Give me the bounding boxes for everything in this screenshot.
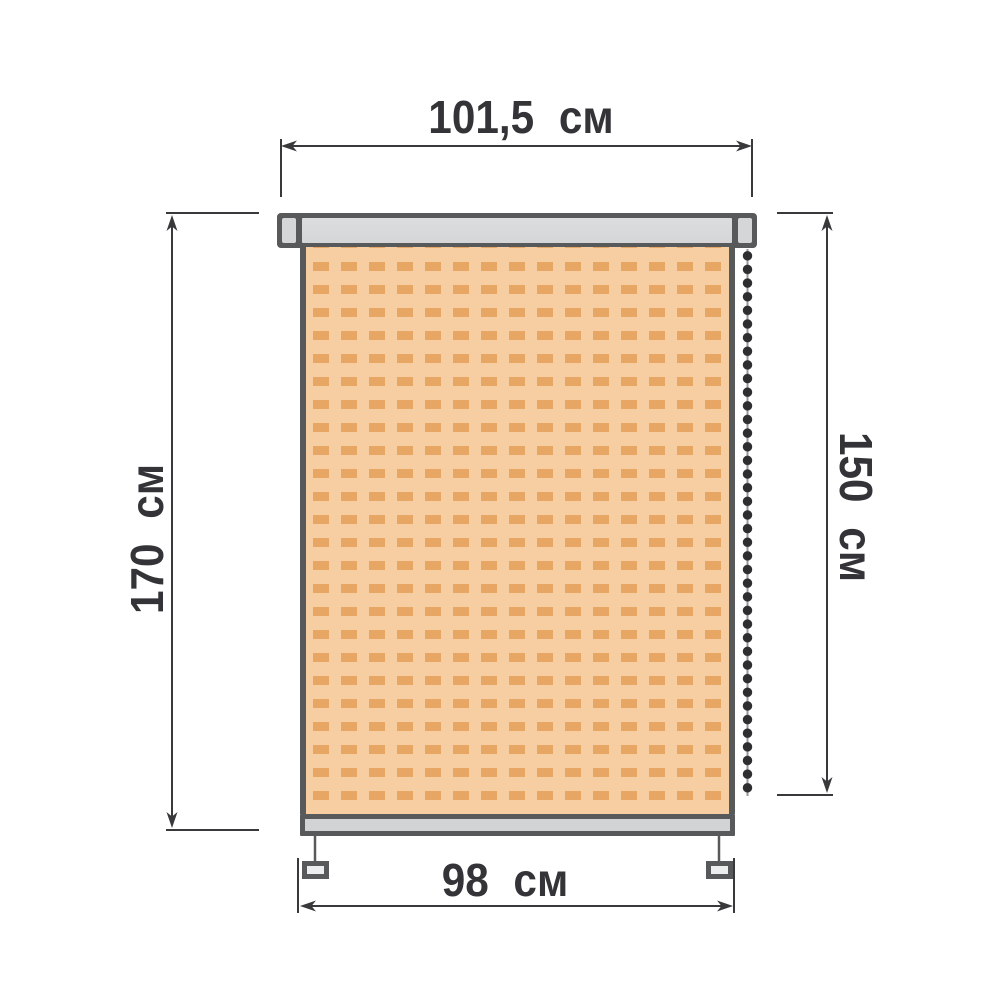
dimension-label-fabric-width: 98 см bbox=[442, 857, 569, 903]
cassette bbox=[277, 213, 757, 248]
dimension-label-cassette-width: 101,5 см bbox=[428, 94, 613, 140]
dimension-label-fabric-height: 150 см bbox=[833, 432, 879, 582]
blind-body bbox=[300, 247, 735, 836]
mounting-bracket-left bbox=[302, 861, 329, 879]
roller-blind-dimension-diagram: 101,5 см 170 см 150 см 98 см bbox=[0, 0, 1000, 1000]
cassette-tube bbox=[302, 218, 732, 243]
cassette-end-cap-right bbox=[738, 218, 752, 243]
dimension-top-cassette-width bbox=[281, 139, 752, 197]
dimension-right-fabric-height bbox=[777, 213, 833, 795]
cassette-end-cap-left bbox=[282, 218, 296, 243]
mounting-bracket-right bbox=[706, 861, 733, 879]
dimension-label-total-height: 170 см bbox=[124, 464, 170, 614]
bead-chain bbox=[742, 249, 753, 796]
fabric-panel bbox=[300, 247, 735, 814]
bottom-rail bbox=[300, 814, 735, 836]
dimension-left-total-height bbox=[166, 213, 259, 830]
